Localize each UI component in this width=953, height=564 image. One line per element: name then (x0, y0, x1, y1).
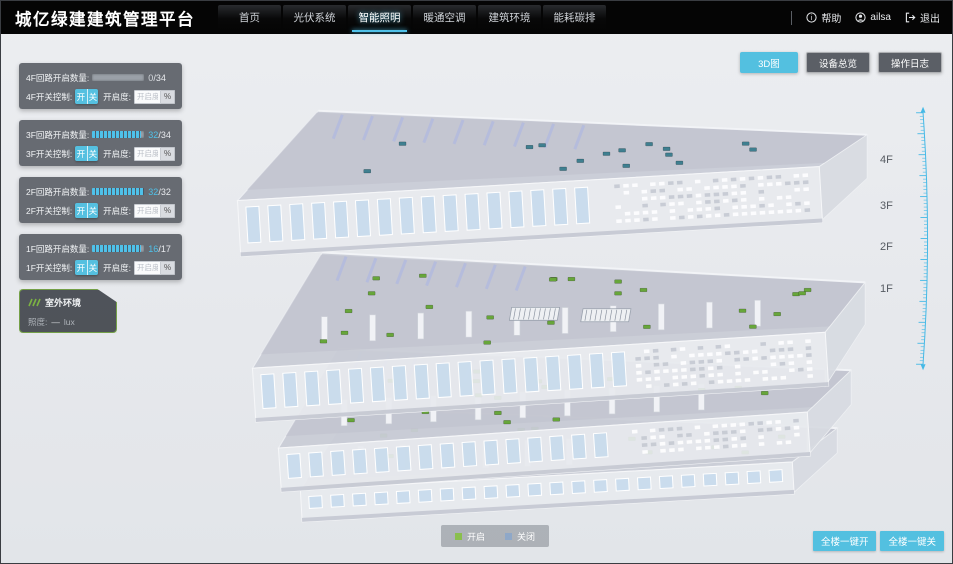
help-button[interactable]: i 帮助 (806, 10, 841, 25)
circuit-progress-bar (92, 245, 144, 252)
nav-item-5[interactable]: 能耗碳排 (543, 5, 606, 30)
user-name: ailsa (870, 12, 891, 23)
light-marker[interactable] (615, 292, 622, 296)
nav-item-4[interactable]: 建筑环境 (478, 5, 541, 30)
legend-item-1: 关闭 (505, 530, 535, 543)
user-menu[interactable]: ailsa (855, 12, 891, 23)
floor-panel-2F: 2F回路开启数量:32/322F开关控制:开关开启度:% (19, 177, 182, 223)
legend-swatch (505, 533, 512, 540)
floor-label-2F[interactable]: 2F (880, 241, 906, 253)
legend-label: 开启 (467, 530, 485, 543)
dim-level-label: 开启度: (103, 91, 131, 103)
light-marker[interactable] (742, 142, 749, 146)
switch-off-button[interactable]: 关 (87, 260, 99, 275)
logout-button[interactable]: 退出 (905, 10, 940, 25)
switch-control-label: 3F开关控制: (26, 148, 72, 160)
circuit-count-label: 3F回路开启数量: (26, 129, 89, 141)
light-marker[interactable] (640, 288, 647, 292)
bulk-button-0[interactable]: 全楼一键开 (813, 531, 877, 551)
light-marker[interactable] (341, 331, 348, 335)
legend-item-0: 开启 (455, 530, 485, 543)
nav-item-1[interactable]: 光伏系统 (283, 5, 346, 30)
percent-button[interactable]: % (161, 261, 175, 275)
light-marker[interactable] (619, 149, 626, 153)
outdoor-env-panel: 室外环境 照度: — lux (19, 289, 117, 333)
env-icon (28, 298, 41, 307)
dim-level-input[interactable] (134, 261, 161, 275)
illuminance-label: 照度: (28, 316, 47, 328)
circuit-progress-bar (92, 74, 144, 81)
nav-item-0[interactable]: 首页 (218, 5, 281, 30)
svg-text:i: i (811, 15, 813, 22)
app-window: 城亿绿建建筑管理平台 首页光伏系统智能照明暖通空调建筑环境能耗碳排 i 帮助 a… (0, 0, 953, 564)
floor-panel-1F: 1F回路开启数量:16/171F开关控制:开关开启度:% (19, 234, 182, 280)
header-right: i 帮助 ailsa 退出 (791, 10, 952, 25)
header-divider (791, 11, 792, 25)
circuit-count-label: 2F回路开启数量: (26, 186, 89, 198)
light-marker[interactable] (348, 418, 355, 422)
light-marker[interactable] (623, 164, 630, 168)
circuit-count-value: 32/34 (148, 130, 171, 140)
floor-ruler (916, 107, 927, 370)
nav-item-3[interactable]: 暖通空调 (413, 5, 476, 30)
illuminance-value: — (51, 317, 60, 327)
light-marker[interactable] (568, 277, 575, 281)
light-marker[interactable] (539, 143, 546, 147)
circuit-progress-bar (92, 188, 144, 195)
light-marker[interactable] (749, 325, 756, 329)
light-marker[interactable] (663, 147, 670, 151)
light-marker[interactable] (577, 159, 584, 163)
nav-item-2[interactable]: 智能照明 (348, 5, 411, 30)
light-marker[interactable] (774, 312, 781, 316)
logout-icon (905, 12, 916, 23)
light-marker[interactable] (419, 274, 426, 278)
dim-level-label: 开启度: (103, 262, 131, 274)
dim-level-label: 开启度: (103, 205, 131, 217)
light-marker[interactable] (799, 291, 806, 295)
switch-control-label: 2F开关控制: (26, 205, 72, 217)
view-button-2[interactable]: 操作日志 (878, 52, 942, 73)
user-icon (855, 12, 866, 23)
switch-on-button[interactable]: 开 (75, 260, 86, 275)
light-marker[interactable] (549, 278, 556, 282)
light-marker[interactable] (345, 309, 352, 313)
switch-on-button[interactable]: 开 (75, 146, 86, 161)
header-bar: 城亿绿建建筑管理平台 首页光伏系统智能照明暖通空调建筑环境能耗碳排 i 帮助 a… (1, 1, 952, 34)
outdoor-title: 室外环境 (45, 296, 81, 309)
switch-off-button[interactable]: 关 (87, 146, 99, 161)
main-nav: 首页光伏系统智能照明暖通空调建筑环境能耗碳排 (217, 1, 607, 34)
light-marker[interactable] (750, 148, 757, 152)
light-marker[interactable] (761, 391, 768, 395)
legend-swatch (455, 533, 462, 540)
light-marker[interactable] (553, 418, 560, 422)
view-button-0[interactable]: 3D图 (740, 52, 798, 73)
dim-level-input[interactable] (134, 147, 161, 161)
light-marker[interactable] (494, 411, 501, 415)
circuit-count-value: 0/34 (148, 73, 166, 83)
switch-control-label: 1F开关控制: (26, 262, 72, 274)
light-marker[interactable] (739, 309, 746, 313)
floor-label-4F[interactable]: 4F (880, 154, 906, 166)
floor-panel-4F: 4F回路开启数量:0/344F开关控制:开关开启度:% (19, 63, 182, 109)
circuit-count-value: 16/17 (148, 244, 171, 254)
floor-model-4f (237, 111, 867, 257)
switch-on-button[interactable]: 开 (75, 89, 86, 104)
light-marker[interactable] (426, 305, 433, 309)
floor-label-1F[interactable]: 1F (880, 283, 906, 295)
floor-label-3F[interactable]: 3F (880, 200, 906, 212)
legend-label: 关闭 (517, 530, 535, 543)
light-marker[interactable] (320, 340, 327, 344)
dim-level-input[interactable] (134, 90, 161, 104)
switch-on-button[interactable]: 开 (75, 203, 86, 218)
light-marker[interactable] (615, 280, 622, 284)
light-marker[interactable] (484, 341, 491, 345)
light-marker[interactable] (603, 152, 610, 156)
switch-off-button[interactable]: 关 (87, 89, 99, 104)
light-marker[interactable] (665, 153, 672, 157)
percent-button[interactable]: % (161, 147, 175, 161)
light-marker[interactable] (504, 420, 511, 424)
circuit-count-label: 4F回路开启数量: (26, 72, 89, 84)
light-marker[interactable] (560, 167, 567, 171)
light-marker[interactable] (526, 145, 533, 149)
light-marker[interactable] (643, 325, 650, 329)
floor-panel-3F: 3F回路开启数量:32/343F开关控制:开关开启度:% (19, 120, 182, 166)
light-marker[interactable] (368, 292, 375, 296)
light-marker[interactable] (676, 161, 683, 165)
bulk-action-buttons: 全楼一键开全楼一键关 (813, 531, 944, 551)
app-title: 城亿绿建建筑管理平台 (1, 6, 209, 30)
logout-label: 退出 (920, 10, 940, 25)
light-marker[interactable] (399, 142, 406, 146)
light-marker[interactable] (373, 277, 380, 281)
switch-control-label: 4F开关控制: (26, 91, 72, 103)
circuit-count-value: 32/32 (148, 187, 171, 197)
light-marker[interactable] (387, 333, 394, 337)
light-marker[interactable] (487, 316, 494, 320)
circuit-progress-bar (92, 131, 144, 138)
percent-button[interactable]: % (161, 204, 175, 218)
view-button-1[interactable]: 设备总览 (806, 52, 870, 73)
dim-level-input[interactable] (134, 204, 161, 218)
switch-off-button[interactable]: 关 (87, 203, 99, 218)
status-legend: 开启关闭 (441, 525, 549, 547)
circuit-count-label: 1F回路开启数量: (26, 243, 89, 255)
help-icon: i (806, 12, 817, 23)
light-marker[interactable] (547, 321, 554, 325)
light-marker[interactable] (646, 142, 653, 146)
dim-level-label: 开启度: (103, 148, 131, 160)
bulk-button-1[interactable]: 全楼一键关 (880, 531, 944, 551)
illuminance-unit: lux (64, 317, 75, 327)
help-label: 帮助 (821, 10, 841, 25)
percent-button[interactable]: % (161, 90, 175, 104)
view-buttons: 3D图设备总览操作日志 (740, 52, 942, 73)
light-marker[interactable] (364, 169, 371, 173)
